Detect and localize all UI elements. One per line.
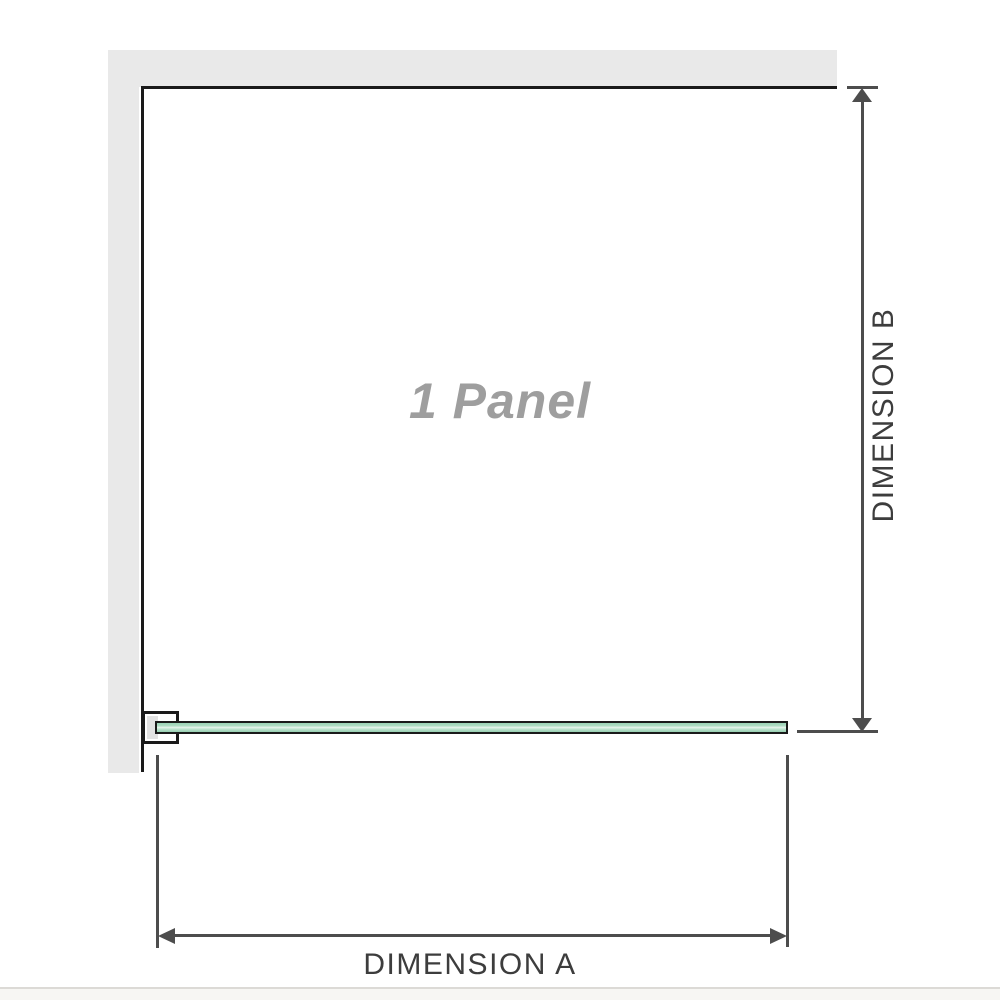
panel-outline-top <box>141 86 837 89</box>
dimension-a-extension-left <box>156 755 159 948</box>
dimension-b-label: DIMENSION B <box>869 265 899 565</box>
dimension-a-label: DIMENSION A <box>320 949 620 981</box>
footer-strip <box>0 989 1000 1000</box>
glass-panel <box>155 721 788 734</box>
dimension-a-extension-right <box>786 755 789 947</box>
dimension-a-line <box>172 934 773 937</box>
dimension-a-arrow-right-icon <box>770 928 787 944</box>
dimension-b-arrow-up-icon <box>852 88 872 102</box>
dimension-a-arrow-left-icon <box>158 928 175 944</box>
wall-top <box>108 50 837 87</box>
dimension-b-line <box>861 96 864 724</box>
dimension-diagram: 1 Panel DIMENSION B DIMENSION A <box>0 0 1000 1000</box>
wall-left <box>108 50 139 773</box>
panel-label: 1 Panel <box>300 372 700 430</box>
panel-outline-left <box>141 86 144 772</box>
dimension-b-arrow-down-icon <box>852 718 872 732</box>
